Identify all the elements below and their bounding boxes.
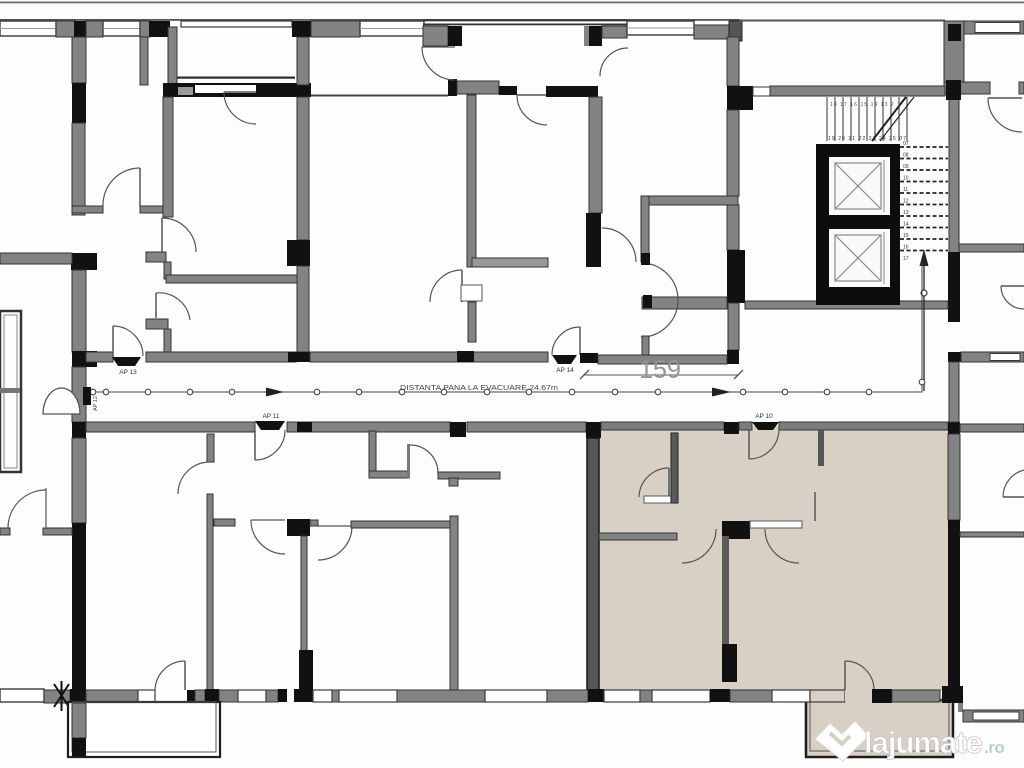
svg-text:19 20 21 22 23 24 25 07: 19 20 21 22 23 24 25 07	[828, 136, 906, 142]
svg-text:DISTANTA PANA LA EVACUARE 24.6: DISTANTA PANA LA EVACUARE 24.67m	[400, 385, 558, 392]
svg-text:159: 159	[639, 356, 681, 384]
svg-text:15: 15	[903, 233, 909, 239]
svg-text:13: 13	[903, 210, 909, 216]
svg-text:AP 10: AP 10	[755, 413, 773, 420]
svg-text:AP 12: AP 12	[93, 396, 99, 411]
svg-text:09: 09	[903, 164, 909, 170]
svg-text:12: 12	[903, 199, 909, 205]
svg-text:17: 17	[903, 256, 909, 262]
svg-text:18 17 16 15 14 13 2 1: 18 17 16 15 14 13 2 1	[830, 102, 900, 108]
svg-text:AP 14: AP 14	[556, 367, 574, 374]
svg-text:10: 10	[903, 176, 909, 182]
svg-text:lajumate: lajumate	[864, 725, 983, 760]
svg-text:.ro: .ro	[984, 738, 1004, 757]
svg-text:07: 07	[903, 141, 909, 147]
svg-text:08: 08	[903, 153, 909, 159]
svg-text:11: 11	[903, 187, 908, 193]
svg-text:16: 16	[903, 245, 909, 251]
svg-text:AP 11: AP 11	[262, 413, 279, 420]
svg-text:AP 13: AP 13	[119, 369, 137, 376]
svg-text:14: 14	[903, 222, 909, 228]
